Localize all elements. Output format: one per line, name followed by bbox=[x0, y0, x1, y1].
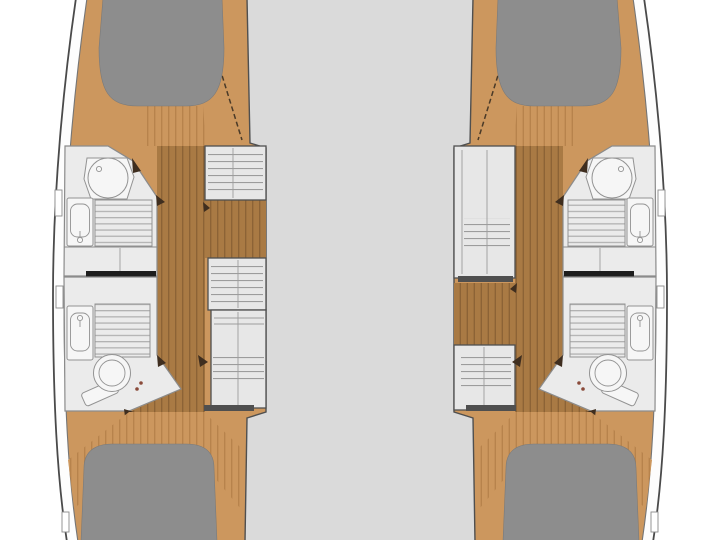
starboard-hull bbox=[454, 0, 667, 540]
port-aft-teak-grating bbox=[95, 304, 150, 357]
port-forward-washbasin bbox=[67, 198, 93, 246]
starboard-forward-berth bbox=[496, 0, 621, 106]
port-hull-window-2 bbox=[56, 286, 63, 308]
port-aft-berth bbox=[81, 444, 217, 540]
starboard-tall-cabinet bbox=[454, 146, 515, 282]
floorplan-canvas bbox=[0, 0, 720, 540]
starboard-companionway-entry-floor bbox=[454, 283, 515, 345]
bridge-deck-area bbox=[244, 0, 476, 540]
port-mid-step-unit bbox=[208, 258, 266, 310]
starboard-wardrobe bbox=[454, 345, 516, 411]
starboard-hull-window-1 bbox=[658, 190, 665, 216]
starboard-forward-washbasin bbox=[627, 198, 653, 246]
starboard-forward-walkway-floor bbox=[514, 106, 577, 146]
port-forward-walkway-floor bbox=[143, 106, 206, 146]
port-companionway-entry-floor bbox=[205, 200, 266, 258]
port-hull-window-3 bbox=[62, 512, 69, 532]
starboard-aft-berth bbox=[503, 444, 639, 540]
port-hull bbox=[53, 0, 266, 540]
port-bathroom-divider-door bbox=[86, 271, 156, 277]
catamaran-deck-plan bbox=[0, 0, 720, 540]
port-forward-teak-grating bbox=[95, 200, 152, 246]
port-forward-shower-pan bbox=[88, 158, 128, 198]
starboard-forward-shower-pan bbox=[592, 158, 632, 198]
port-forward-berth bbox=[99, 0, 224, 106]
starboard-hull-window-2 bbox=[657, 286, 664, 308]
starboard-bathroom-divider-door bbox=[564, 271, 634, 277]
port-aft-washbasin bbox=[67, 306, 93, 360]
starboard-aft-washbasin bbox=[627, 306, 653, 360]
starboard-hull-window-3 bbox=[651, 512, 658, 532]
starboard-forward-teak-grating bbox=[568, 200, 625, 246]
port-hull-window-1 bbox=[55, 190, 62, 216]
port-companionway-steps bbox=[205, 146, 266, 200]
port-wardrobe bbox=[204, 310, 266, 411]
starboard-aft-teak-grating bbox=[570, 304, 625, 357]
